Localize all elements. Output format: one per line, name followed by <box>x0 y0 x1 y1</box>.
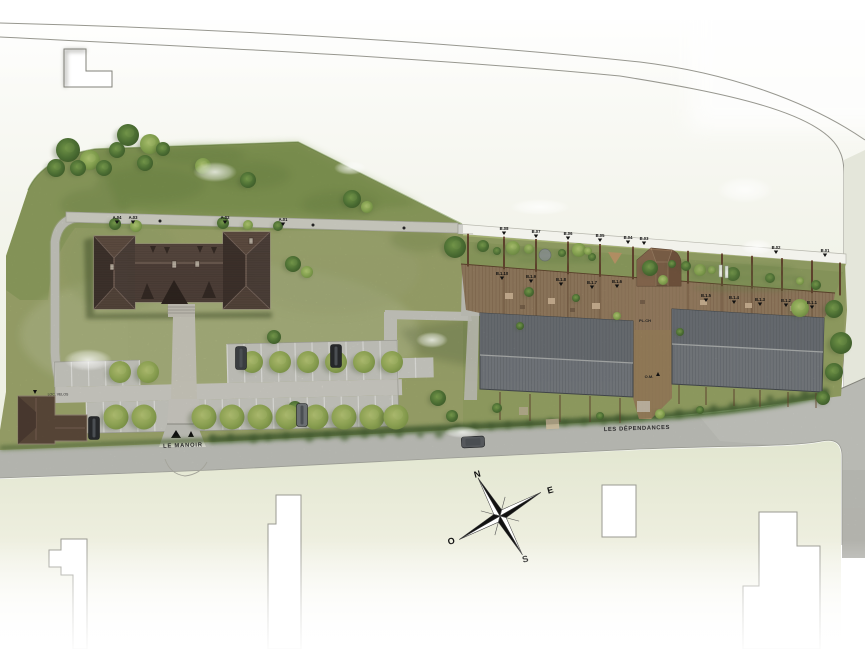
svg-text:B.05: B.05 <box>596 233 606 238</box>
svg-text:A.02: A.02 <box>221 215 231 220</box>
svg-text:B.1.5: B.1.5 <box>701 293 712 298</box>
svg-text:O.M.: O.M. <box>645 374 654 379</box>
svg-text:B.1.9: B.1.9 <box>526 274 537 279</box>
svg-text:B.03: B.03 <box>640 236 650 241</box>
svg-text:B.1.8: B.1.8 <box>556 277 567 282</box>
svg-text:B.1.10: B.1.10 <box>496 271 509 276</box>
svg-text:B.01: B.01 <box>821 248 831 253</box>
svg-text:B.06: B.06 <box>564 231 574 236</box>
svg-text:B.08: B.08 <box>500 226 510 231</box>
svg-text:B.02: B.02 <box>772 245 782 250</box>
svg-text:B.1.1: B.1.1 <box>807 300 818 305</box>
svg-text:B.1.7: B.1.7 <box>587 280 598 285</box>
svg-text:B.07: B.07 <box>532 229 542 234</box>
svg-text:B.1.2: B.1.2 <box>781 298 792 303</box>
svg-text:PL.CH: PL.CH <box>639 318 651 323</box>
svg-text:A.03: A.03 <box>129 215 139 220</box>
svg-text:A.04: A.04 <box>113 215 123 220</box>
svg-text:B.1.6: B.1.6 <box>612 279 623 284</box>
svg-text:B.1.3: B.1.3 <box>755 297 766 302</box>
svg-text:B.04: B.04 <box>624 235 634 240</box>
svg-text:B.1.4: B.1.4 <box>729 295 740 300</box>
svg-text:A.01: A.01 <box>279 217 289 222</box>
